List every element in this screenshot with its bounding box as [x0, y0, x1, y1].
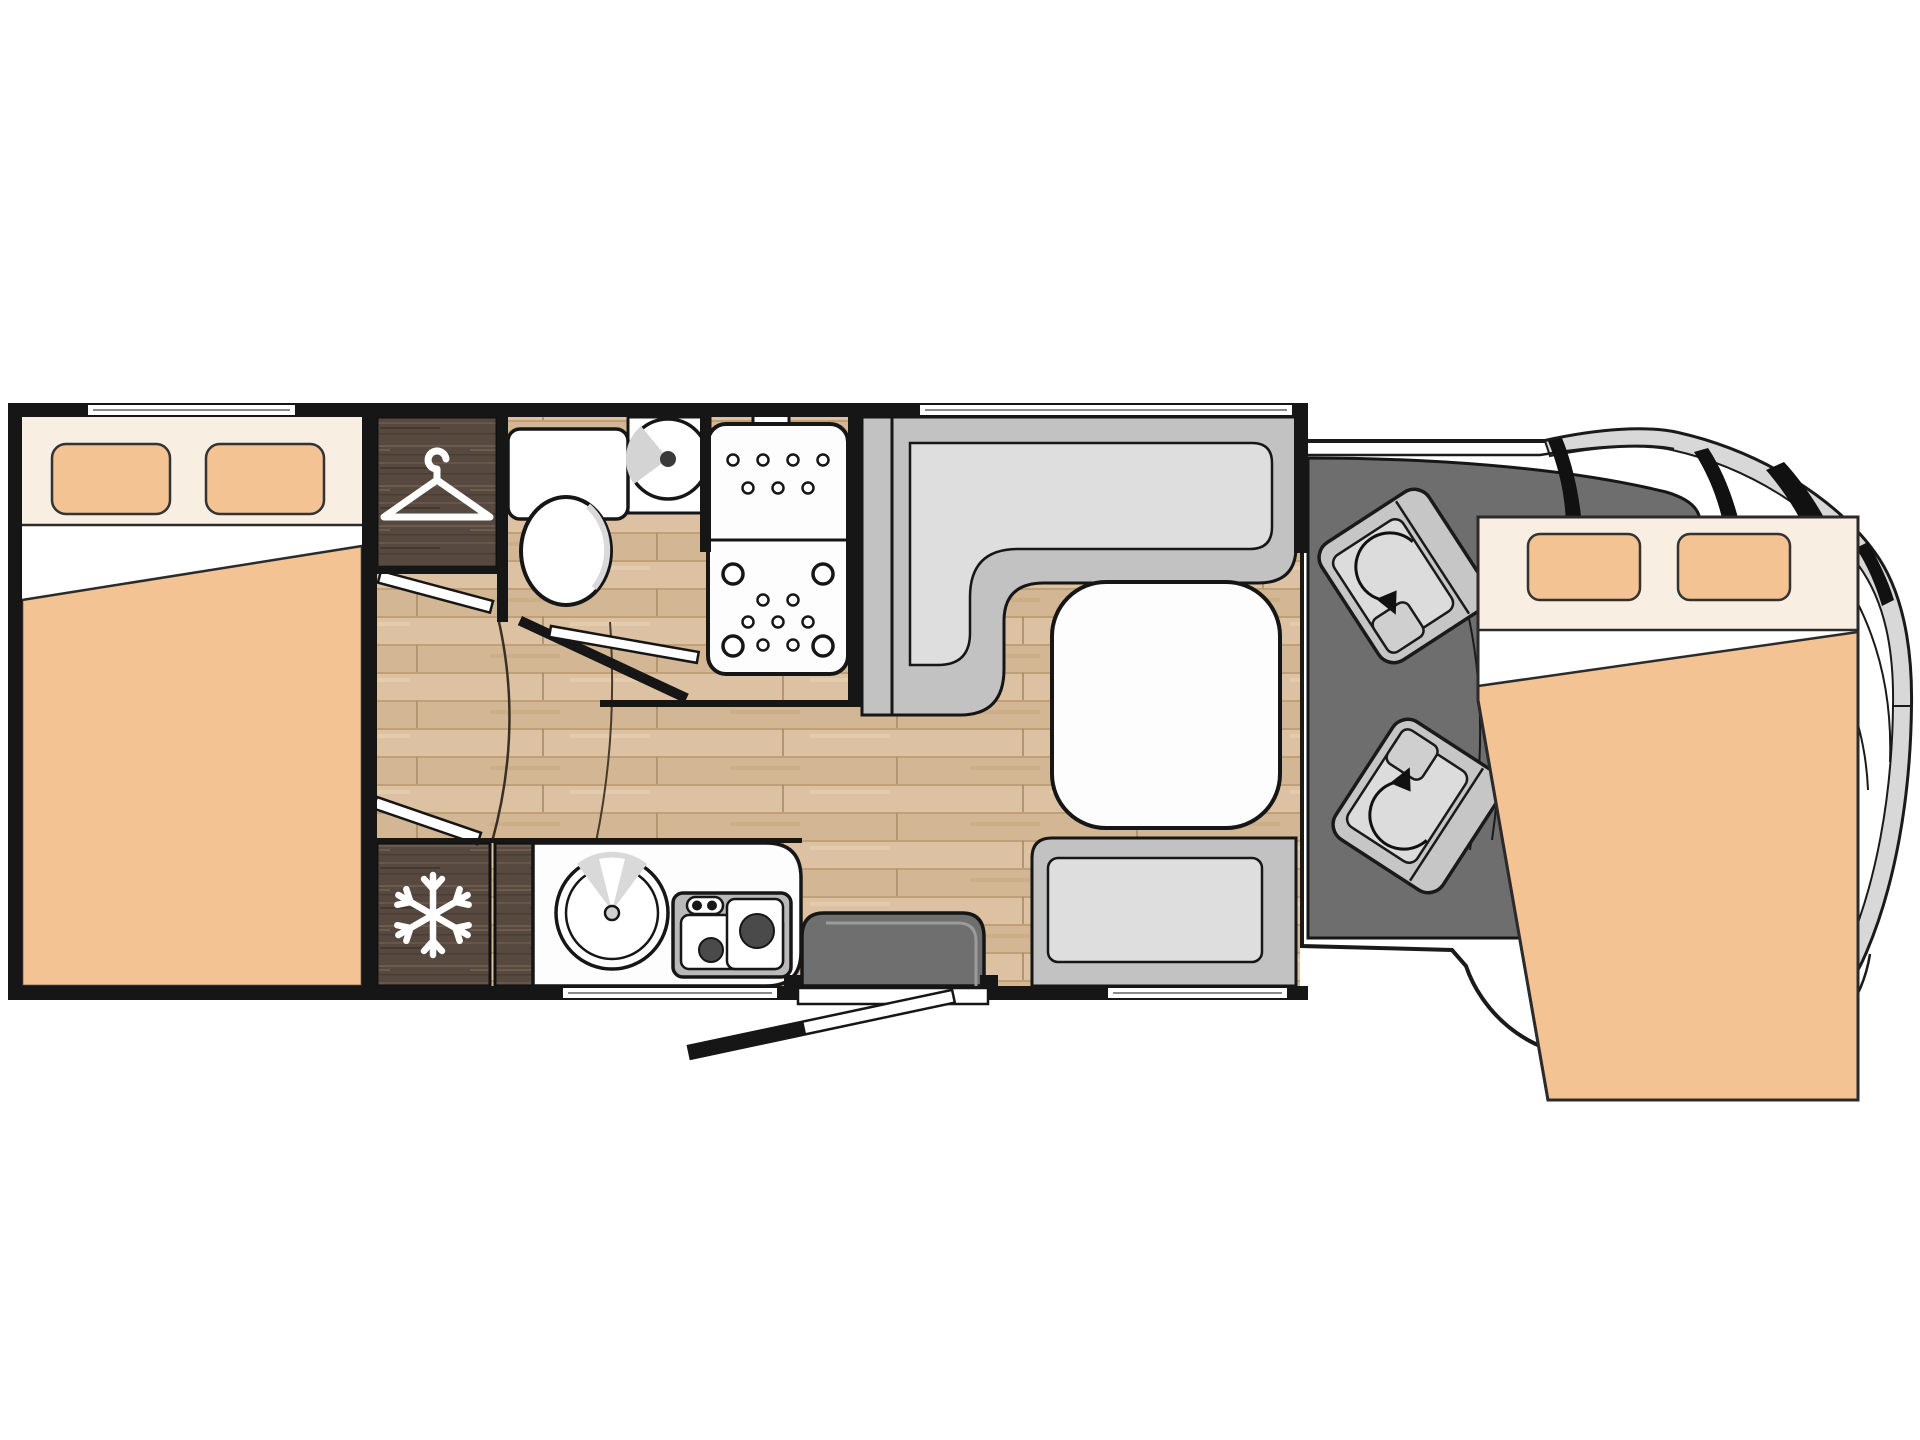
- motorhome-floorplan: [0, 0, 1920, 1440]
- refrigerator: [377, 843, 490, 986]
- drop-down-front-bed: [1478, 517, 1858, 1100]
- wall-shower-left: [700, 417, 711, 552]
- entrance-door: [802, 913, 984, 986]
- window-side-bench: [1108, 988, 1287, 998]
- wall-right-stub: [1294, 403, 1308, 553]
- two-burner-hob: [673, 893, 791, 977]
- rear-double-bed: [22, 417, 362, 986]
- base-cabinet: [495, 843, 533, 986]
- wall-bathroom-left: [497, 417, 508, 622]
- wall-bedroom: [362, 417, 377, 986]
- burner-large: [740, 914, 774, 948]
- front-pillow-right: [1678, 534, 1790, 600]
- burner-small: [699, 938, 723, 962]
- dining-table: [1052, 582, 1280, 828]
- toilet: [521, 497, 611, 605]
- wall-shower-right: [848, 417, 861, 707]
- washbasin: [626, 419, 708, 499]
- wall-kitchen-top: [362, 838, 802, 843]
- bench-end-panel: [862, 417, 892, 715]
- wall-left: [8, 403, 22, 1000]
- bed-blanket: [22, 546, 362, 986]
- wall-bathroom-bottom: [600, 700, 861, 707]
- shower-cubicle: [708, 409, 848, 674]
- window-dinette: [920, 405, 1292, 415]
- wardrobe: [377, 417, 497, 567]
- front-pillow-left: [1528, 534, 1640, 600]
- pillow-left: [52, 444, 170, 514]
- pillow-right: [206, 444, 324, 514]
- window-kitchen: [563, 988, 777, 998]
- side-bench-cushion: [1048, 858, 1262, 962]
- kitchen-block: [533, 843, 801, 986]
- window-bedroom: [88, 405, 295, 415]
- wall-wardrobe-bottom: [377, 566, 497, 574]
- floorplan-canvas: [0, 0, 1920, 1440]
